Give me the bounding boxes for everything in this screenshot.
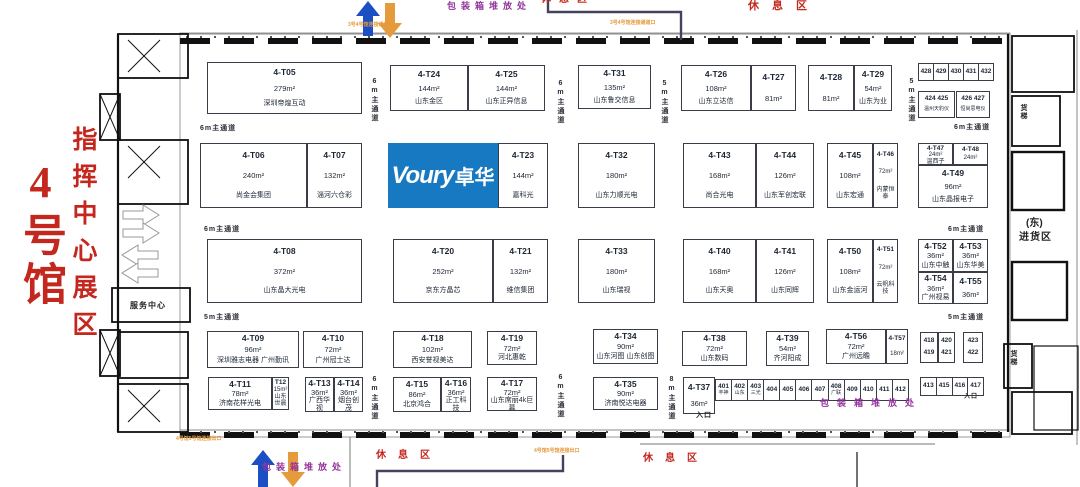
booth-4-T11: 4-T1178m²济南花样光电 xyxy=(208,377,272,410)
exhibition-floorplan: 4号馆 指挥中心展区 Voury卓华 4-T05279m²深圳帝煌互动4-T24… xyxy=(0,0,1080,487)
booth-exhibitor-name: 山东晶大光电 xyxy=(264,287,306,295)
booth-4-T46: 4-T4672m²内蒙恒泰 xyxy=(873,143,898,208)
corridor-label: 5m主通道 xyxy=(204,312,240,322)
annotation-black: 服务中心 xyxy=(130,302,166,310)
booth-4-T27: 4-T2781m² xyxy=(751,65,796,111)
booth-4-T55: 4-T5536m² xyxy=(953,272,988,304)
booth-id: 4-T49 xyxy=(942,169,964,179)
grid-line: 温州天豹仪 xyxy=(924,107,949,112)
booth-id: 4-T15 xyxy=(406,380,428,390)
booth-area: 72m² xyxy=(879,169,893,176)
booth-exhibitor-name: 山东天奥 xyxy=(706,287,734,295)
booth-area: 36m² xyxy=(690,400,707,408)
booth-4-T37: 4-T3736m² xyxy=(683,377,715,414)
booth-area: 86m² xyxy=(408,391,425,399)
booth-id: 4-T08 xyxy=(273,247,295,257)
booth-4-T35: 4-T3590m²济南悦达电器 xyxy=(593,377,658,410)
booth-exhibitor-name: 京东方晶芯 xyxy=(426,287,461,295)
booth-area: 96m² xyxy=(244,346,261,354)
booth-area: 78m² xyxy=(231,390,248,398)
booth-id: 4-T43 xyxy=(708,151,730,161)
booth-id: 4-T52 xyxy=(924,242,946,252)
booth-exhibitor-name: 淄河六仓彩 xyxy=(317,192,352,200)
booth-area: 36m² xyxy=(927,285,944,293)
annotation-orange: 3号4号馆连接通道口 xyxy=(348,23,394,28)
grid-line: 426 427 xyxy=(961,96,985,103)
booth-id: 4-T54 xyxy=(924,274,946,284)
grid-line: 418 xyxy=(924,338,935,345)
booth-id: 4-T50 xyxy=(839,247,861,257)
booth-note: 山东 xyxy=(735,391,745,396)
booth-area: 72m² xyxy=(503,345,520,353)
booth-area: 180m² xyxy=(606,268,627,276)
corridor-label: 6m主通道 xyxy=(369,78,379,123)
booth-4-T41: 4-T41126m²山东同辉 xyxy=(756,239,814,303)
booth-exhibitor-name: 山东金区 xyxy=(415,98,443,106)
booth-4-T21: 4-T21132m²维信集团 xyxy=(493,239,548,303)
annotation-black: 进货区 xyxy=(1019,233,1052,243)
booth-exhibitor-name: 内蒙恒泰 xyxy=(875,187,896,200)
booth-4-T06: 4-T06240m²尚金会集团 xyxy=(200,143,307,208)
booth-area: 54m² xyxy=(779,345,796,353)
booth-id: 4-T26 xyxy=(705,70,727,80)
booth-405: 405 xyxy=(779,380,795,400)
booths-426-427: 426 427恒尚思电仪 xyxy=(956,91,990,118)
booth-4-T56: 4-T5672m²广州远瞻 xyxy=(826,329,886,364)
booth-id: 4-T57 xyxy=(889,335,906,342)
booth-area: 72m² xyxy=(706,345,723,353)
booth-area: 126m² xyxy=(774,172,795,180)
booth-4-T45: 4-T45108m²山东宏通 xyxy=(827,143,873,208)
booth-410: 410 xyxy=(860,380,876,400)
booth-exhibitor-name: 北京鸿合 xyxy=(403,401,431,409)
booth-id: 4-T45 xyxy=(839,151,861,161)
booth-406: 406 xyxy=(795,380,811,400)
booth-id: 4-T56 xyxy=(845,332,867,342)
booth-id: 4-T37 xyxy=(688,383,710,393)
booth-area: 24m² xyxy=(964,155,978,162)
booth-id: T12 xyxy=(275,379,286,386)
annotation-red: 休息区 xyxy=(748,1,820,12)
booth-4-T53: 4-T5336m²山东华美 xyxy=(953,239,988,272)
booth-4-T24: 4-T24144m²山东金区 xyxy=(390,65,468,111)
booth-exhibitor-name: 山东同辉 xyxy=(771,287,799,295)
booth-area: 144m² xyxy=(512,172,533,180)
booth-exhibitor-name: 深圳帝煌互动 xyxy=(264,100,306,108)
booth-4-T08: 4-T08372m²山东晶大光电 xyxy=(207,239,362,303)
voury-logo-text-cn: 卓华 xyxy=(455,161,495,190)
booth-id: 4-T35 xyxy=(614,380,636,390)
booth-id: 4-T19 xyxy=(501,334,523,344)
booth-area: 240m² xyxy=(243,172,264,180)
corridor-label: 8m主通道 xyxy=(666,376,676,421)
booth-id: 4-T29 xyxy=(862,70,884,80)
corridor-label: 6m主通道 xyxy=(369,376,379,421)
booth-4-T19: 4-T1972m²河北惠乾 xyxy=(487,331,537,365)
booth-id: 4-T11 xyxy=(229,380,251,390)
booth-id: 4-T48 xyxy=(962,146,979,153)
booth-area: 168m² xyxy=(709,172,730,180)
booth-id: 4-T41 xyxy=(774,247,796,257)
booth-area: 108m² xyxy=(705,85,726,93)
booth-id: 4-T51 xyxy=(877,246,894,253)
booth-T12: T1215m²山东世晨 xyxy=(272,377,289,410)
booth-exhibitor-name: 山东军创宏联 xyxy=(764,192,806,200)
booth-area: 168m² xyxy=(709,268,730,276)
booth-exhibitor-name: 山东河图 山东创图 xyxy=(597,353,655,361)
booth-id: 4-T53 xyxy=(959,242,981,252)
booth-exhibitor-name: 西安誉视美达 xyxy=(412,357,454,365)
booth-area: 72m² xyxy=(879,265,893,272)
annotation-black: (东) xyxy=(1026,219,1043,229)
corridor-label: 5m主通道 xyxy=(906,78,916,123)
booth-area: 180m² xyxy=(606,172,627,180)
booth-area: 372m² xyxy=(274,268,295,276)
booth-402: 402山东 xyxy=(731,380,747,400)
booth-id: 4-T06 xyxy=(242,151,264,161)
zone-label: 指挥中心展区 xyxy=(70,126,95,348)
annotation-black: 入口 xyxy=(696,412,712,419)
booth-428: 428 xyxy=(919,64,933,80)
booth-area: 36m² xyxy=(447,389,464,397)
booth-note: 三光 xyxy=(751,391,761,396)
booth-4-T14: 4-T1436m²烟台创茂 xyxy=(334,377,363,412)
booth-id: 4-T25 xyxy=(495,70,517,80)
booth-exhibitor-name: 山东金运河 xyxy=(833,287,868,295)
booth-area: 108m² xyxy=(839,172,860,180)
booth-area: 72m² xyxy=(847,343,864,351)
booth-area: 36m² xyxy=(927,252,944,260)
booth-4-T33: 4-T33180m²山东瑞视 xyxy=(578,239,655,303)
booth-4-T54: 4-T5436m²广州视易 xyxy=(918,272,953,304)
booth-4-T15: 4-T1586m²北京鸿合 xyxy=(393,377,441,412)
annotation-black: 货梯 xyxy=(1020,104,1027,120)
corridor-label: 6m主通道 xyxy=(200,123,236,133)
booth-area: 102m² xyxy=(422,346,443,354)
booth-exhibitor-name: 山东宏通 xyxy=(836,192,864,200)
booth-432: 432 xyxy=(978,64,993,80)
booth-area: 132m² xyxy=(510,268,531,276)
grid-line: 423 xyxy=(968,338,979,345)
booths-428-432: 428429430431432 xyxy=(918,63,994,81)
booth-id: 4-T31 xyxy=(603,69,625,79)
booth-exhibitor-name: 河北惠乾 xyxy=(498,354,526,362)
booth-412: 412 xyxy=(892,380,908,400)
booth-4-T52: 4-T5236m²山东中触 xyxy=(918,239,953,272)
booth-id: 4-T20 xyxy=(432,247,454,257)
booth-area: 36m² xyxy=(311,389,328,397)
booth-id: 4-T32 xyxy=(605,151,627,161)
booth-4-T51: 4-T5172m²云帆科技 xyxy=(873,239,898,303)
booth-area: 132m² xyxy=(324,172,345,180)
booth-4-T10: 4-T1072m²广州冠士达 xyxy=(303,331,363,368)
booth-id: 4-T27 xyxy=(762,73,784,83)
booth-4-T07: 4-T07132m²淄河六仓彩 xyxy=(307,143,362,208)
booth-4-T39: 4-T3954m²齐河阳成 xyxy=(766,331,809,366)
booth-area: 90m² xyxy=(617,343,634,351)
booth-id: 4-T07 xyxy=(323,151,345,161)
booth-exhibitor-name: 山东晶报电子 xyxy=(932,196,974,204)
booth-area: 81m² xyxy=(822,95,839,103)
booth-exhibitor-name: 云帆科技 xyxy=(875,282,896,295)
booth-4-T26: 4-T26108m²山东立达信 xyxy=(681,65,751,111)
booth-4-T50: 4-T50108m²山东金运河 xyxy=(827,239,873,303)
booth-exhibitor-name: 山东席丽4k巨幕 xyxy=(489,397,535,411)
booth-exhibitor-name: 维信集团 xyxy=(507,287,535,295)
booth-area: 54m² xyxy=(864,85,881,93)
booth-431: 431 xyxy=(963,64,978,80)
booth-4-T13: 4-T1336m²广西华视 xyxy=(305,377,334,412)
booth-id: 4-T10 xyxy=(322,334,344,344)
booth-4-T31: 4-T31135m²山东鲁交信息 xyxy=(578,65,651,109)
booth-exhibitor-name: 正工科技 xyxy=(443,397,469,412)
booth-area: 36m² xyxy=(340,389,357,397)
booth-4-T17: 4-T1772m²山东席丽4k巨幕 xyxy=(487,377,537,411)
booths-418-419: 418419 xyxy=(920,332,938,363)
booth-area: 18m² xyxy=(890,351,904,358)
annotation-red: 休息区 xyxy=(643,454,709,464)
booth-exhibitor-name: 山东世晨 xyxy=(274,394,287,407)
booth-exhibitor-name: 尚金会集团 xyxy=(236,192,271,200)
booths-424-425: 424 425温州天豹仪 xyxy=(918,91,955,118)
booth-413: 413 xyxy=(921,378,936,395)
corridor-label: 5m主通道 xyxy=(659,80,669,125)
booth-4-T43: 4-T43168m²尚合光电 xyxy=(683,143,756,208)
booth-4-T38: 4-T3872m²山东数码 xyxy=(682,331,747,366)
booth-407: 407 xyxy=(811,380,827,400)
annotation-purple: 包装箱堆放处 xyxy=(262,463,346,472)
booth-4-T05: 4-T05279m²深圳帝煌互动 xyxy=(207,62,362,114)
booth-4-T32: 4-T32180m²山东力顺光电 xyxy=(578,143,655,208)
booths-420-421: 420421 xyxy=(938,332,955,363)
booth-exhibitor-name: 济南花样光电 xyxy=(219,400,261,408)
booth-4-T40: 4-T40168m²山东天奥 xyxy=(683,239,756,303)
booth-4-T29: 4-T2954m²山东为业 xyxy=(854,65,892,111)
voury-logo: Voury卓华 xyxy=(388,143,498,208)
booth-416: 416 xyxy=(952,378,968,395)
corridor-label: 6m主通道 xyxy=(954,122,990,132)
booth-exhibitor-name: 广州视易 xyxy=(922,294,950,302)
booth-430: 430 xyxy=(948,64,963,80)
booth-exhibitor-name: 山东鲁交信息 xyxy=(594,97,636,105)
booth-note: 丰神 xyxy=(719,391,729,396)
booth-area: 144m² xyxy=(418,85,439,93)
booth-4-T47: 4-T4724m²温西子 xyxy=(918,143,953,165)
booth-exhibitor-name: 烟台创茂 xyxy=(336,397,361,412)
booth-area: 90m² xyxy=(617,390,634,398)
booth-id: 4-T40 xyxy=(708,247,730,257)
booth-exhibitor-name: 齐河阳成 xyxy=(774,355,802,363)
booth-area: 72m² xyxy=(503,389,520,397)
booth-4-T48: 4-T4824m² xyxy=(953,143,988,165)
booth-exhibitor-name: 广州远瞻 xyxy=(842,353,870,361)
grid-line: 421 xyxy=(941,350,952,357)
booth-4-T28: 4-T2881m² xyxy=(808,65,854,111)
booth-id: 4-T38 xyxy=(703,334,725,344)
corridor-label: 6m主通道 xyxy=(555,374,565,419)
booth-area: 72m² xyxy=(324,346,341,354)
booth-408: 408广联 xyxy=(828,380,844,400)
booth-exhibitor-name: 尚合光电 xyxy=(706,192,734,200)
booth-area: 135m² xyxy=(604,84,625,92)
booth-id: 4-T46 xyxy=(877,151,894,158)
corridor-label: 5m主通道 xyxy=(948,312,984,322)
booth-id: 4-T09 xyxy=(242,334,264,344)
booth-4-T25: 4-T25144m²山东正异信息 xyxy=(468,65,545,111)
booth-exhibitor-name: 山东正异信息 xyxy=(486,98,528,106)
grid-line: 恒尚思电仪 xyxy=(960,107,985,112)
annotation-orange: 3号4号馆连接通道口 xyxy=(610,21,656,26)
booth-exhibitor-name: 嘉科光 xyxy=(513,192,534,200)
booth-area: 36m² xyxy=(962,252,979,260)
annotation-purple: 包装箱堆放处 xyxy=(447,2,531,11)
corridor-label: 6m主通道 xyxy=(555,80,565,125)
booth-id: 4-T23 xyxy=(512,151,534,161)
booth-exhibitor-name: 山东瑞视 xyxy=(603,287,631,295)
annotation-orange: 4号馆5号馆连接出口 xyxy=(534,449,580,454)
booth-area: 81m² xyxy=(765,95,782,103)
grid-line: 422 xyxy=(968,350,979,357)
booth-exhibitor-name: 济南悦达电器 xyxy=(605,400,647,408)
booth-area: 15m² xyxy=(274,387,288,394)
voury-logo-text-en: Voury xyxy=(391,162,453,190)
booth-429: 429 xyxy=(933,64,948,80)
booth-411: 411 xyxy=(876,380,892,400)
booth-area: 36m² xyxy=(962,291,979,299)
booth-id: 4-T18 xyxy=(421,334,443,344)
booth-404: 404 xyxy=(763,380,779,400)
annotation-black: 货梯 xyxy=(1010,350,1017,366)
booth-409: 409 xyxy=(844,380,860,400)
booth-id: 4-T34 xyxy=(614,332,636,342)
booth-exhibitor-name: 山东立达信 xyxy=(699,98,734,106)
booth-id: 4-T47 xyxy=(927,145,944,152)
grid-line: 420 xyxy=(941,338,952,345)
booth-4-T34: 4-T3490m²山东河图 山东创图 xyxy=(593,329,658,364)
booth-exhibitor-name: 山东力顺光电 xyxy=(596,192,638,200)
grid-line: 419 xyxy=(924,350,935,357)
booth-note: 广联 xyxy=(831,391,841,396)
booths-422-423: 423422 xyxy=(963,332,983,363)
booth-area: 144m² xyxy=(496,85,517,93)
booth-4-T09: 4-T0996m²深圳雅志电器 广州勤讯 xyxy=(207,331,299,368)
booth-id: 4-T33 xyxy=(605,247,627,257)
annotation-black: 入口 xyxy=(964,394,978,400)
booth-exhibitor-name: 山东中触 xyxy=(922,262,950,270)
booth-area: 108m² xyxy=(839,268,860,276)
grid-line: 424 425 xyxy=(925,96,949,103)
corridor-label: 6m主通道 xyxy=(204,224,240,234)
booth-area: 24m² xyxy=(929,152,943,159)
booth-id: 4-T39 xyxy=(776,334,798,344)
booth-4-T18: 4-T18102m²西安誉视美达 xyxy=(393,331,472,368)
booth-id: 4-T05 xyxy=(273,68,295,78)
booth-area: 96m² xyxy=(944,183,961,191)
booth-4-T57: 4-T5718m² xyxy=(886,329,908,364)
booth-exhibitor-name: 山东华美 xyxy=(957,262,985,270)
booth-417: 417 xyxy=(967,378,983,395)
booth-415: 415 xyxy=(936,378,952,395)
booth-exhibitor-name: 广州冠士达 xyxy=(316,357,351,365)
booth-exhibitor-name: 广西华视 xyxy=(307,397,332,412)
booth-id: 4-T21 xyxy=(509,247,531,257)
annotation-red: 休息区 xyxy=(376,451,442,461)
booth-id: 4-T44 xyxy=(774,151,796,161)
booth-exhibitor-name: 山东数码 xyxy=(701,355,729,363)
annotation-orange: 4号馆5号馆连接出口 xyxy=(176,437,222,442)
booth-id: 4-T55 xyxy=(959,277,981,287)
booth-4-T23: 4-T23144m²嘉科光 xyxy=(498,143,548,208)
booth-4-T44: 4-T44126m²山东军创宏联 xyxy=(756,143,814,208)
booth-4-T20: 4-T20252m²京东方晶芯 xyxy=(393,239,493,303)
booth-403: 403三光 xyxy=(747,380,763,400)
corridor-label: 6m主通道 xyxy=(948,224,984,234)
booth-area: 252m² xyxy=(432,268,453,276)
hall-number-label: 4号馆 xyxy=(18,158,62,310)
booth-4-T16: 4-T1636m²正工科技 xyxy=(441,377,471,412)
booth-id: 4-T24 xyxy=(418,70,440,80)
annotation-purple: 包装箱堆放处 xyxy=(820,399,922,408)
booth-id: 4-T28 xyxy=(820,73,842,83)
booth-exhibitor-name: 山东为业 xyxy=(859,98,887,106)
booth-4-T49: 4-T4996m²山东晶报电子 xyxy=(918,165,988,208)
booth-exhibitor-name: 深圳雅志电器 广州勤讯 xyxy=(217,357,289,365)
booth-area: 279m² xyxy=(274,85,295,93)
booth-area: 126m² xyxy=(774,268,795,276)
booth-401: 401丰神 xyxy=(716,380,731,400)
annotation-red: 休息区 xyxy=(541,0,595,5)
